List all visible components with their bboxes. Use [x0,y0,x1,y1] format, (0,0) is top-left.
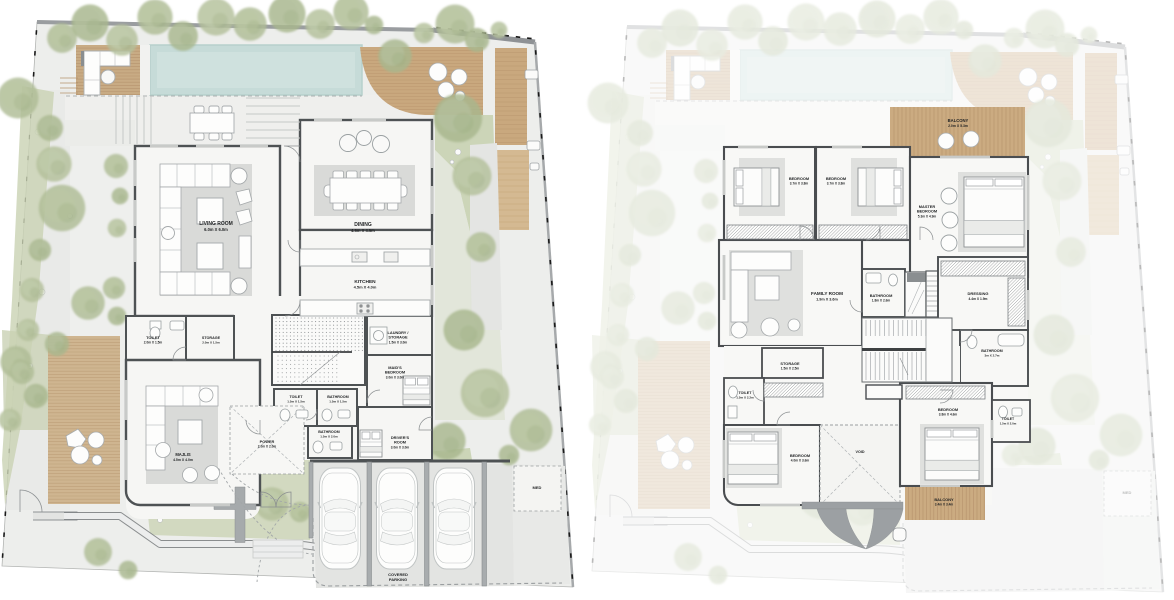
svg-text:4.5m X 4.0m: 4.5m X 4.0m [354,285,377,290]
svg-text:POWER: POWER [260,439,275,444]
svg-text:1.5m X 1.5m: 1.5m X 1.5m [329,400,347,404]
svg-text:3m X 2.7m: 3m X 2.7m [985,354,1000,358]
svg-text:ROOM: ROOM [394,440,406,445]
svg-text:3.8m X 4.6m: 3.8m X 4.6m [939,413,958,417]
svg-text:STORAGE: STORAGE [202,336,221,340]
svg-text:BATHROOM: BATHROOM [327,395,348,399]
svg-text:1.5m X 1.5m: 1.5m X 1.5m [287,400,305,404]
svg-text:1.5m X 2.2m: 1.5m X 2.2m [736,396,754,400]
svg-text:1.5m X 2.0m: 1.5m X 2.0m [1000,421,1017,425]
svg-text:STORAGE: STORAGE [780,361,800,366]
svg-text:1.8m X 2.6m: 1.8m X 2.6m [872,299,891,303]
svg-text:3.0m X 3.0m: 3.0m X 3.0m [386,375,405,379]
svg-text:STORAGE: STORAGE [388,335,408,340]
svg-text:TOILET: TOILET [289,395,303,399]
svg-text:BEDROOM: BEDROOM [790,453,810,458]
svg-text:BEDROOM: BEDROOM [385,370,405,375]
svg-text:4.5m X 4.0m: 4.5m X 4.0m [173,458,193,462]
svg-text:3.4m X 3.4m: 3.4m X 3.4m [935,503,954,507]
svg-text:BATHROOM: BATHROOM [981,349,1002,353]
svg-text:3.7m X 3.8m: 3.7m X 3.8m [790,182,809,186]
svg-text:PARKING: PARKING [389,577,407,582]
svg-text:BATHROOM: BATHROOM [870,293,893,298]
svg-text:MAJLIS: MAJLIS [175,452,191,457]
svg-text:2.0m X 1.5m: 2.0m X 1.5m [144,341,163,345]
svg-text:BEDROOM: BEDROOM [938,407,958,412]
svg-text:1.5m X 3.0m: 1.5m X 3.0m [389,340,408,344]
svg-text:4.5m X 4.5m: 4.5m X 4.5m [351,228,375,233]
svg-text:VOID: VOID [855,450,864,454]
svg-text:3.0m X 3.0m: 3.0m X 3.0m [391,445,410,449]
svg-text:3.7m X 3.8m: 3.7m X 3.8m [827,182,846,186]
svg-text:DRESSING: DRESSING [968,291,989,296]
svg-text:FAMILY ROOM: FAMILY ROOM [811,291,843,296]
svg-text:MED: MED [533,485,542,490]
svg-text:MED: MED [1123,490,1132,495]
svg-text:TOILET: TOILET [738,391,752,395]
svg-text:BATHROOM: BATHROOM [318,430,339,434]
svg-text:BALCONY: BALCONY [934,497,954,502]
svg-text:BEDROOM: BEDROOM [826,176,846,181]
svg-text:5.3m X 4.9m: 5.3m X 4.9m [918,214,937,218]
svg-text:BEDROOM: BEDROOM [789,176,809,181]
svg-text:2.0m X 5.3m: 2.0m X 5.3m [948,124,968,128]
svg-text:1.5m X 2.0m: 1.5m X 2.0m [320,435,338,439]
svg-text:2.0m X 1.5m: 2.0m X 1.5m [202,341,220,345]
svg-text:6.0m X 6.0m: 6.0m X 6.0m [204,227,228,232]
svg-text:BALCONY: BALCONY [948,118,969,123]
svg-text:4.4m X 1.9m: 4.4m X 1.9m [969,297,988,301]
svg-text:1.5m X 2.5m: 1.5m X 2.5m [781,367,800,371]
svg-text:1.9m X 3.6m: 1.9m X 3.6m [816,297,838,301]
svg-text:TOILET: TOILET [146,335,160,340]
svg-text:4.0m X 3.6m: 4.0m X 3.6m [791,459,810,463]
svg-text:2.0m X 2.0m: 2.0m X 2.0m [258,445,277,449]
svg-text:BEDROOM: BEDROOM [917,209,937,214]
